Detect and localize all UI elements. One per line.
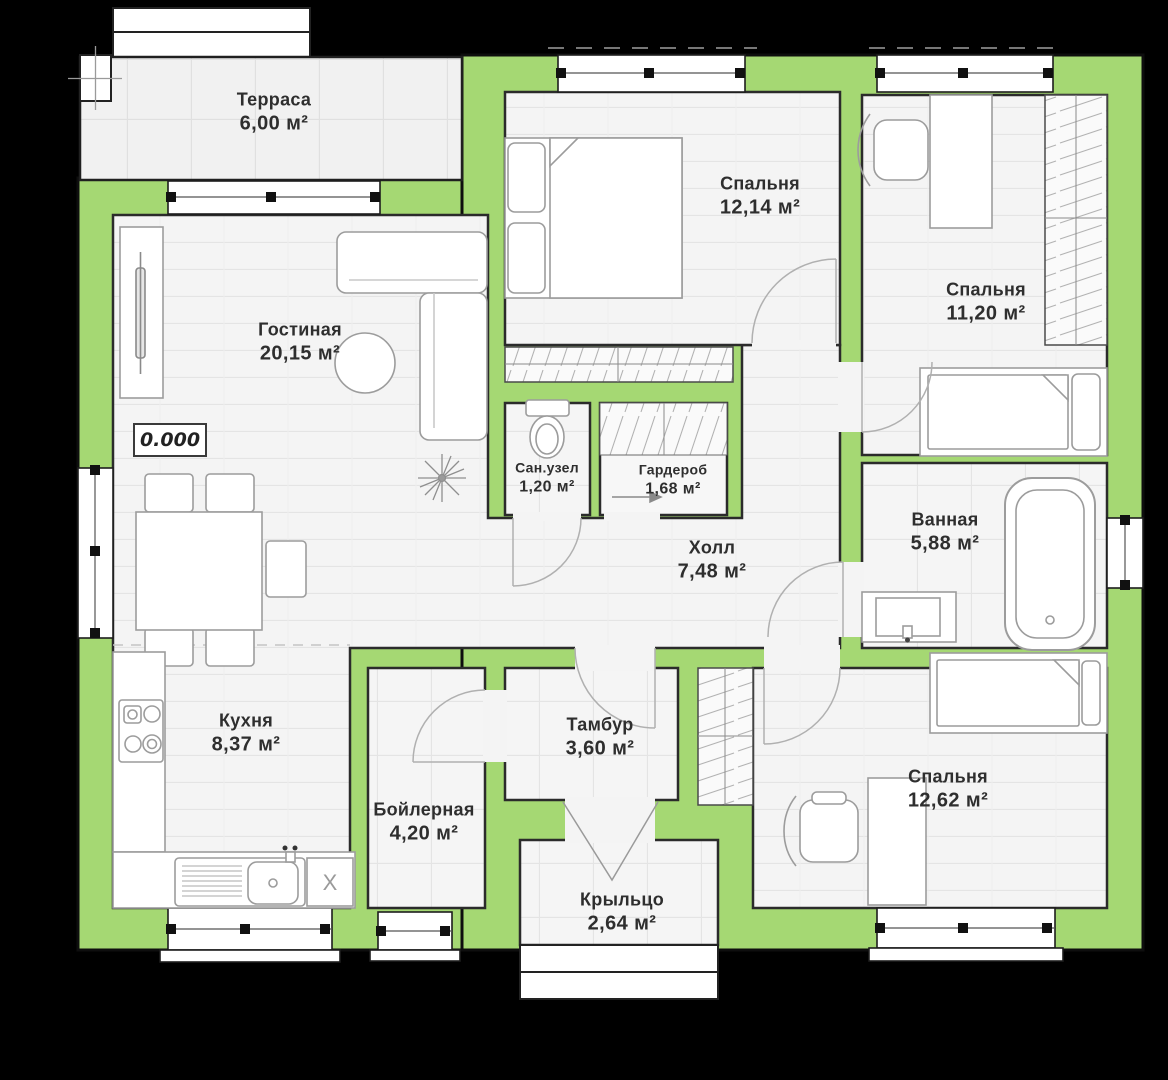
wardrobe-hatch-corridor (698, 668, 753, 805)
room-floor-boiler (368, 668, 485, 908)
desk-bedroom2 (930, 95, 992, 228)
porch-steps (520, 945, 718, 999)
wardrobe-hatch-bedroom2 (1045, 95, 1107, 345)
room-floor-porch (520, 840, 718, 945)
single-bed-bedroom2 (920, 368, 1107, 456)
single-bed-bedroom3 (930, 653, 1107, 733)
double-bed (505, 138, 682, 298)
tv-unit (120, 227, 163, 398)
terrace-steps (113, 8, 310, 57)
bath-sink (862, 592, 956, 643)
stove-icon (119, 700, 163, 762)
room-floor-vestibule (505, 668, 678, 800)
round-table (335, 333, 395, 393)
floor-plan-canvas: X (0, 0, 1168, 1080)
appliance-x-label: X (323, 870, 338, 895)
room-floor-terrace (80, 57, 462, 180)
wardrobe-hatch-bedroom1 (505, 347, 733, 382)
wardrobe-hatch-closet (600, 403, 727, 455)
elevation-marker: 0.000 (133, 423, 207, 457)
desk-bedroom3 (868, 778, 926, 905)
floor-plan-stage: X Терраса6,00 м² Гостиная20,15 м² Спальн… (0, 0, 1168, 1080)
bathtub-icon (1005, 478, 1095, 650)
plant-icon (418, 454, 466, 502)
